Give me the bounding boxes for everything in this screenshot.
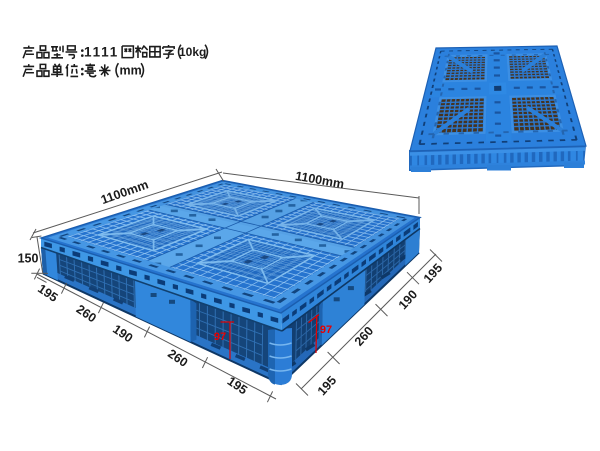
svg-text:150: 150 — [18, 252, 39, 266]
svg-text:195: 195 — [225, 374, 250, 397]
svg-text:195: 195 — [421, 261, 445, 286]
svg-text:195: 195 — [315, 373, 339, 398]
svg-text:1100mm: 1100mm — [294, 169, 345, 191]
svg-text:260: 260 — [165, 347, 190, 370]
svg-text:260: 260 — [352, 324, 376, 349]
svg-text:195: 195 — [35, 282, 60, 305]
svg-text:97: 97 — [320, 324, 332, 336]
svg-text:1111: 1111 — [84, 45, 119, 60]
svg-text:190: 190 — [110, 322, 135, 345]
svg-text:mm: mm — [120, 64, 142, 78]
svg-text:260: 260 — [74, 302, 99, 325]
svg-text:10kg: 10kg — [179, 45, 206, 59]
svg-text:97: 97 — [214, 331, 226, 343]
svg-text:1100mm: 1100mm — [99, 177, 150, 207]
